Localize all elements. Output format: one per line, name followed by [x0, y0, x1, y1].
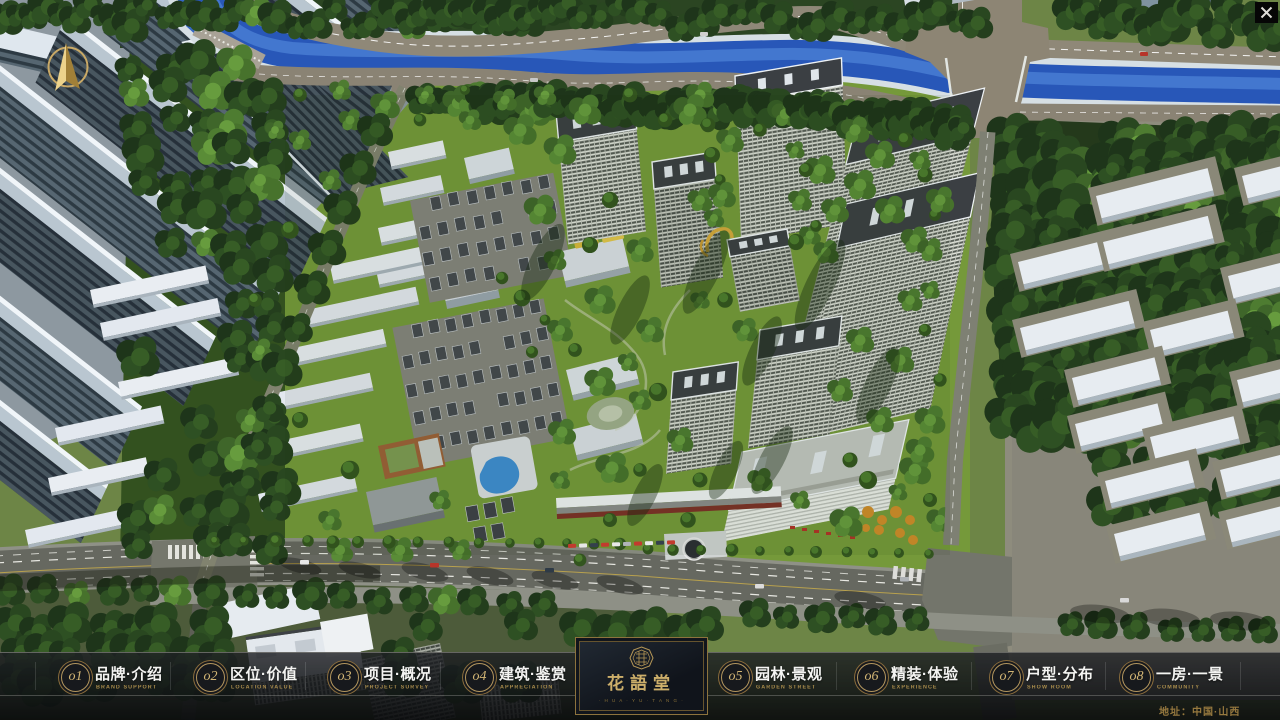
svg-text:花語堂: 花語堂: [607, 673, 676, 693]
svg-text:· H U A · Y U · T A N G ·: · H U A · Y U · T A N G ·: [599, 698, 684, 703]
